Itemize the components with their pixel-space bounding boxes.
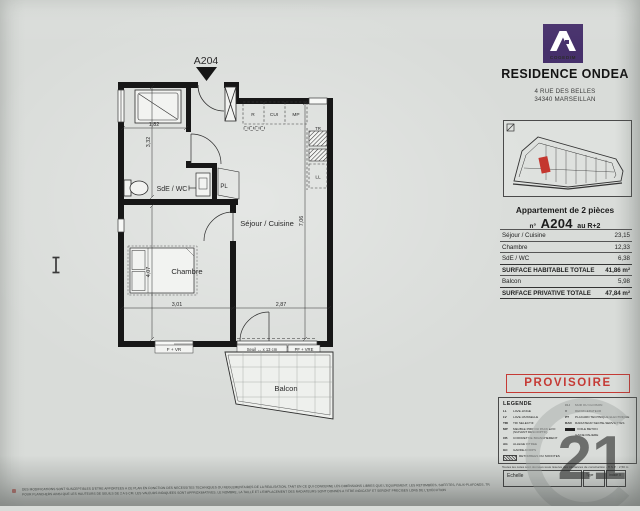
threshold-label: Seuil ↔ x 13 cm	[247, 347, 278, 352]
building-outline	[513, 137, 623, 189]
row-label: Balcon	[502, 278, 521, 285]
living-label: Séjour / Cuisine	[240, 219, 294, 228]
sink	[189, 173, 210, 196]
legend-item: TRITRI SELECTIF	[503, 422, 563, 425]
table-row: Chambre 12,33	[500, 241, 632, 253]
legend-item: LLLAVE-LINGE	[503, 410, 563, 413]
dim-shower-width: 1,82	[149, 122, 160, 128]
unit-marker	[538, 156, 550, 174]
table-row-total-habitable: SURFACE HABITABLE TOTALE 41,86 m²	[500, 264, 632, 276]
row-value: 23,15	[615, 232, 630, 239]
legend-left-column: LLLAVE-LINGE LVLAVE-VAISSELLE TRITRI SEL…	[503, 410, 563, 464]
building-key-plan	[503, 120, 632, 197]
balcony-label: Balcon	[274, 384, 297, 393]
row-label: Séjour / Cuisine	[502, 232, 546, 239]
text-cursor	[49, 256, 63, 274]
surface-table: Séjour / Cuisine 23,15 Chambre 12,33 SdE…	[500, 229, 632, 299]
table-row: Séjour / Cuisine 23,15	[500, 229, 632, 241]
entry-arrow: A204	[194, 55, 219, 81]
legend-item: CLIMUR OU CLOISON	[565, 404, 633, 407]
unit-label: A204	[194, 55, 219, 67]
bedroom-label: Chambre	[171, 267, 202, 276]
row-value: 47,84 m²	[605, 290, 630, 297]
cogedim-logo: COGEDIM	[543, 24, 583, 63]
wall-notch	[118, 219, 124, 232]
legend-right-column: CLIMUR OU CLOISON RREFRIGERATEUR PTPLACA…	[565, 404, 633, 440]
bathroom-door	[191, 134, 221, 164]
solid-swatch-icon	[565, 428, 575, 431]
mp-label: MP	[292, 112, 299, 118]
legend-item: LVLAVE-VAISSELLE	[503, 416, 563, 419]
type-box: Type	[583, 470, 605, 487]
dim-bedroom-width: 3,01	[172, 302, 183, 308]
dim-bedroom-height: 4,07	[146, 267, 152, 278]
technical-column: TR LL	[307, 126, 327, 190]
scale-caption: Toutes les cotes sont données sous réser…	[502, 465, 632, 469]
toilet	[124, 180, 148, 196]
legend-item-hatch: RETOMBEES OU SOFFITES	[503, 455, 563, 461]
legend-item-solid: VOILE BETON	[565, 428, 633, 431]
legend-box: LEGENDE LLLAVE-LINGE LVLAVE-VAISSELLE TR…	[498, 397, 637, 464]
washer-label: LL	[315, 175, 321, 181]
row-label: SdE / WC	[502, 255, 529, 262]
balcony: Balcon	[225, 352, 333, 419]
floor-plan: A204	[0, 0, 500, 506]
dim-bathroom-height: 3,32	[146, 137, 152, 148]
bedroom-door	[204, 212, 233, 241]
indice-box: Indice 0	[606, 470, 626, 487]
row-value: 5,98	[618, 278, 630, 285]
row-label: Chambre	[502, 244, 527, 251]
closet-label: PL	[220, 184, 228, 190]
table-row-total-privative: SURFACE PRIVATIVE TOTALE 47,84 m²	[500, 287, 632, 299]
red-stamp-mark	[12, 489, 16, 493]
address-line2: 34340 MARSEILLAN	[490, 96, 640, 103]
legend-item: AGALLEGE VITREE	[503, 443, 563, 446]
provisoire-stamp: PROVISOIRE	[506, 374, 630, 393]
row-label: SURFACE PRIVATIVE TOTALE	[502, 290, 591, 297]
table-row: SdE / WC 6,38	[500, 252, 632, 264]
north-icon	[507, 124, 514, 131]
kitchen-window	[309, 98, 327, 104]
residence-title: RESIDENCE ONDEA	[490, 67, 640, 81]
entry-door	[198, 85, 236, 121]
echelle-box: Echelle	[503, 470, 582, 487]
apartment-type: Appartement de 2 pièces	[490, 205, 640, 215]
hatch-swatch-icon	[503, 455, 517, 461]
fridge-label: R	[251, 112, 255, 118]
logo-wordmark: COGEDIM	[550, 55, 576, 60]
dim-living-width: 2,87	[276, 302, 287, 308]
legend-item: MPMEUBLE PMR OU PACK EVO (SUIVANT DESCRI…	[503, 428, 563, 435]
table-row: Balcon 5,98	[500, 275, 632, 287]
row-value: 12,33	[615, 244, 630, 251]
tr-label: TR	[315, 126, 321, 131]
bathroom-label: SdE / WC	[157, 186, 188, 193]
legend-item: PTPLACARD TECHNIQUE ELECTRIQUE	[565, 416, 633, 419]
legend-title: LEGENDE	[503, 401, 532, 407]
row-label: SURFACE HABITABLE TOTALE	[502, 267, 594, 274]
row-value: 6,38	[618, 255, 630, 262]
legend-item: GAINE PALIERE	[565, 434, 633, 437]
shower	[135, 90, 181, 123]
window-fvr-label: F + VR	[167, 347, 182, 352]
row-value: 41,86 m²	[605, 267, 630, 274]
legend-item: CBCOFFRET DE BRANCHEMENT	[503, 437, 563, 440]
legend-item: GCGARDE-CORPS	[503, 449, 563, 452]
dim-living-height: 7,06	[299, 216, 305, 227]
window-pfvre-label: PF + VRE	[295, 347, 314, 352]
windows	[118, 90, 327, 347]
cooker-label: CUI	[270, 112, 278, 118]
scale-row: Echelle Type Indice 0	[503, 470, 626, 487]
legend-item: RADRADIATEUR SECHE-SERVIETTES	[565, 422, 633, 425]
address-line1: 4 RUE DES BELLES	[490, 88, 640, 95]
title-block-panel: COGEDIM RESIDENCE ONDEA 4 RUE DES BELLES…	[490, 0, 640, 506]
legend-item: RREFRIGERATEUR	[565, 410, 633, 413]
